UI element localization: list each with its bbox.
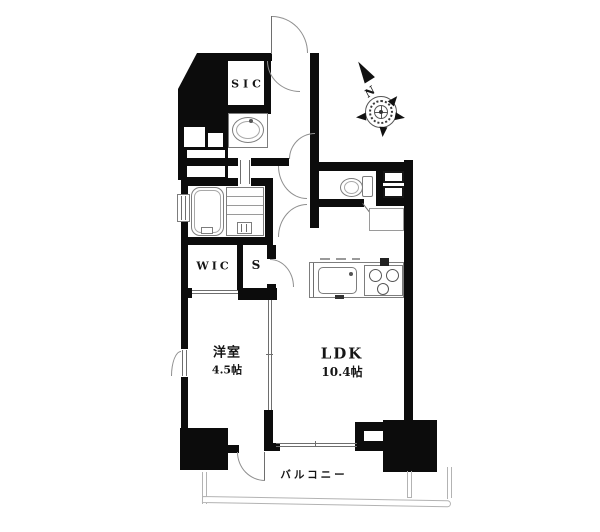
room-label-storage: S [252,259,261,271]
partition-sliding-line [271,300,272,410]
wall-toilet-top [312,162,413,171]
washbasin-inner [236,121,260,139]
hall-door-arc [267,61,300,92]
wall-below-s [238,288,277,300]
shower-grid-line [227,205,263,206]
cabinet-dash [320,258,330,260]
washroom-door-arc [289,133,315,159]
shower-grid-line [227,214,263,215]
wall-s-right-top [267,245,276,259]
room-size-ldk: 10.4帖 [321,366,362,378]
pillar-bottom-right [383,420,437,472]
wall-washroom-bottom-right [251,158,289,166]
balcony-drain-cap [407,497,412,498]
wall-washroom-bottom-left [181,158,238,166]
balcony-rail-right [451,467,452,498]
meter-box [184,127,205,147]
toilet-tank [362,176,373,197]
compass-point-icon [394,112,405,122]
ldk-door-arc [278,204,307,237]
corridor-door-arc [278,166,307,199]
wic-sliding-door-line [192,290,238,291]
cabinet-dash [336,258,346,260]
balcony-window-tick [315,441,316,447]
compass-point-icon [379,127,388,138]
wall-bath-top-left [181,178,238,186]
toilet-bowl-inner [344,181,359,194]
wall-window-end-top [355,422,385,431]
pillar-bottom-left [180,428,228,470]
bedroom-window-line [186,350,187,376]
room-label-bedroom: 洋室 [213,347,241,360]
wall-bath-right [265,178,273,245]
stove-burner [377,283,389,295]
wall-below-wic [181,288,192,298]
balcony-window-line [276,446,357,447]
storage-door-arc [270,259,294,287]
washbasin-faucet [249,119,253,123]
wall-wic-top [181,237,273,245]
wic-sliding-door-line [192,293,238,294]
room-label-ldk: LDK [321,347,364,362]
partition-tick [266,354,273,355]
bathtub-tap [201,227,213,234]
shower-grid-line [227,196,263,197]
bath-window-pane [185,196,186,220]
bath-window-pane [181,196,182,220]
shower-stand-tick [246,224,247,232]
stove-vent-block [380,258,389,266]
partition-sliding-line [268,300,269,410]
entrance-door-arc [272,16,308,53]
meter-box [208,133,223,147]
balcony-rail-bottom [202,496,451,507]
wall-below-shelves [376,197,413,206]
kitchen-drain [335,295,344,299]
cabinet-dash [352,258,360,260]
stove-burner [369,269,382,282]
wall-wic-s-divider [237,245,243,290]
wall-shelf-left [376,170,383,200]
balcony-drain-pipe [411,471,412,498]
room-label-wic: WIC [196,261,231,272]
shower-stand [237,222,252,234]
balcony-door-arc [237,452,265,481]
wall-window-end-bottom [355,441,385,451]
bedroom-window-swing-arc [171,351,181,376]
wall-partition-corner [264,443,280,451]
bath-door-line [240,160,241,184]
wall-toilet-bottom [317,199,364,207]
refrigerator-space [369,208,404,231]
room-label-sic: SIC [231,79,265,90]
bath-door-line [249,160,250,184]
compass-center-dot [379,110,383,114]
room-label-balcony: バルコニー [280,470,347,481]
kitchen-counter-edge [313,263,314,297]
bath-window [177,194,190,222]
shelf [383,171,404,183]
balcony-drain-pipe [407,471,408,498]
compass-point-icon [356,113,367,122]
balcony-window-line [276,443,357,444]
wall-left-main [181,221,188,428]
bedroom-window-line [182,350,183,376]
stove-burner [386,269,399,282]
north-arrow-icon [353,58,375,83]
shower-stand-tick [241,224,242,232]
room-size-bedroom: 4.5帖 [212,365,242,376]
shelf [383,186,404,198]
balcony-rail-right [447,467,448,499]
kitchen-faucet [349,272,353,276]
floor-plan: N SIC WIC S 洋室 4.5帖 LDK 10.4帖 バルコニー [0,0,600,532]
